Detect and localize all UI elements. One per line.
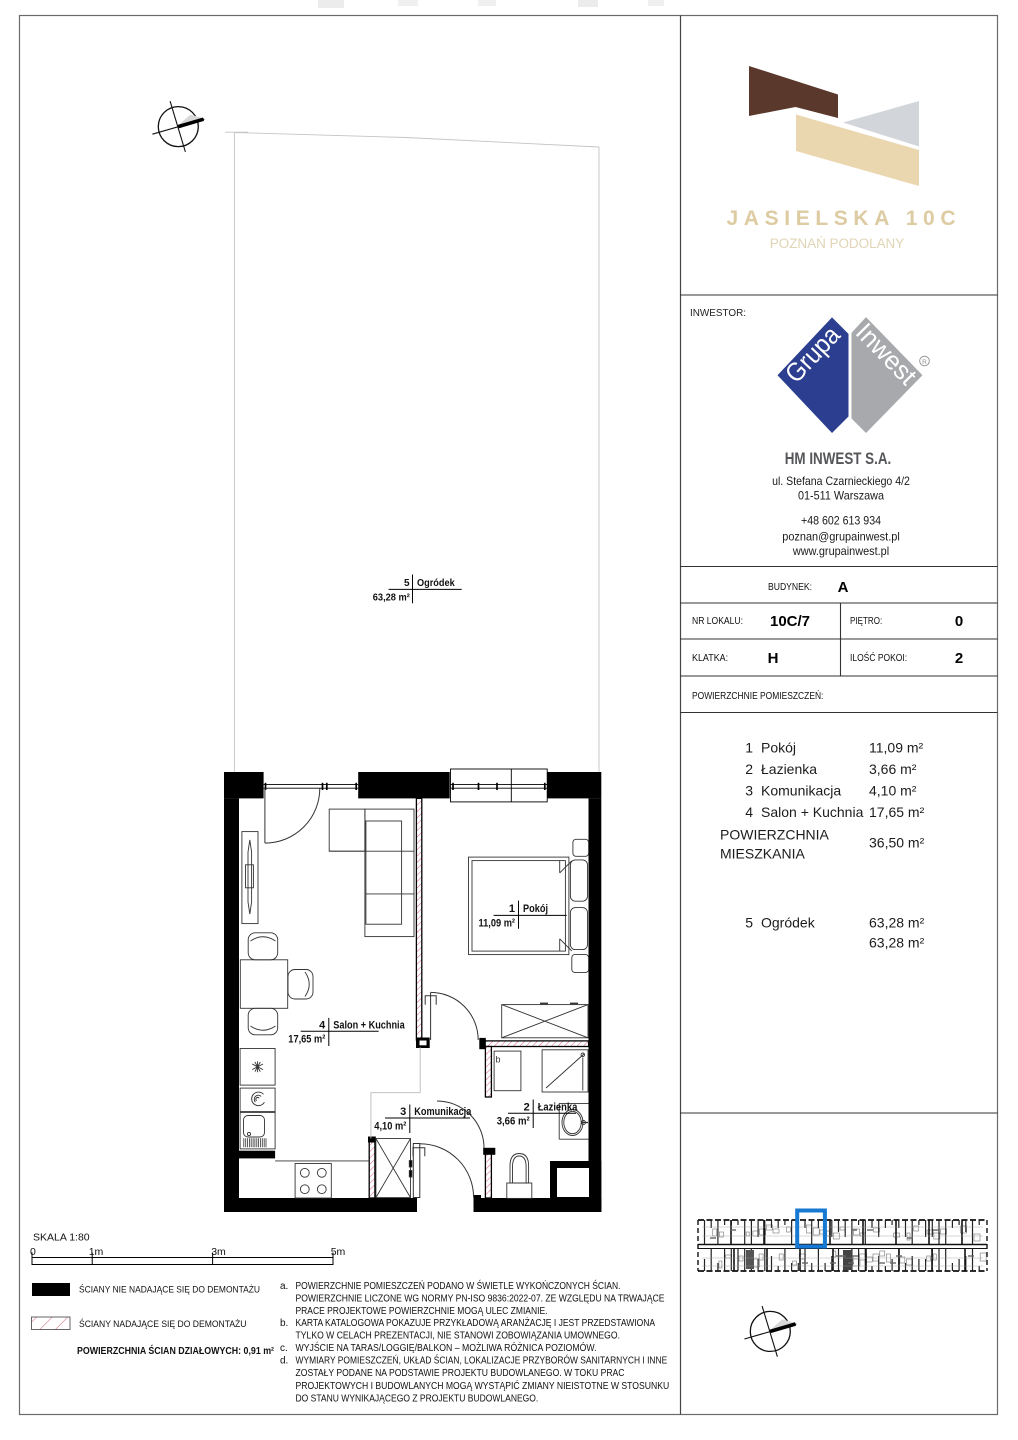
- svg-text:0: 0: [30, 1246, 36, 1258]
- svg-text:ŚCIANY NADAJĄCE SIĘ DO DEMONTA: ŚCIANY NADAJĄCE SIĘ DO DEMONTAŻU: [79, 1318, 247, 1330]
- svg-text:1: 1: [509, 903, 515, 915]
- svg-text:TYLKO W CELACH PREZENTACJI, NI: TYLKO W CELACH PREZENTACJI, NIE STANOWI …: [296, 1330, 621, 1341]
- svg-text:HM INWEST S.A.: HM INWEST S.A.: [785, 450, 892, 468]
- svg-text:Łazienka: Łazienka: [761, 761, 817, 777]
- svg-text:ŚCIANY NIE NADAJĄCE SIĘ DO DEM: ŚCIANY NIE NADAJĄCE SIĘ DO DEMONTAŻU: [79, 1284, 260, 1296]
- svg-text:63,28 m²: 63,28 m²: [869, 935, 925, 951]
- svg-text:4,10 m²: 4,10 m²: [374, 1121, 406, 1133]
- svg-text:63,28 m²: 63,28 m²: [869, 915, 925, 931]
- svg-text:WYJŚCIE NA TARAS/LOGGIĘ/BALKON: WYJŚCIE NA TARAS/LOGGIĘ/BALKON – MOŻLIWA…: [296, 1341, 597, 1354]
- svg-text:4: 4: [319, 1020, 326, 1032]
- svg-text:POWIERZCHNIA: POWIERZCHNIA: [720, 827, 830, 843]
- svg-text:b: b: [496, 1055, 501, 1065]
- svg-text:4,10 m²: 4,10 m²: [869, 783, 917, 799]
- svg-text:MIESZKANIA: MIESZKANIA: [720, 845, 805, 861]
- svg-text:NR LOKALU:: NR LOKALU:: [692, 616, 743, 627]
- svg-text:2: 2: [955, 650, 963, 667]
- svg-text:Salon + Kuchnia: Salon + Kuchnia: [333, 1020, 405, 1032]
- svg-text:3m: 3m: [211, 1246, 226, 1258]
- svg-text:POZNAŃ PODOLANY: POZNAŃ PODOLANY: [770, 236, 905, 251]
- svg-text:0: 0: [955, 613, 963, 630]
- svg-text:17,65 m²: 17,65 m²: [288, 1034, 325, 1046]
- svg-text:ul. Stefana Czarnieckiego 4/2: ul. Stefana Czarnieckiego 4/2: [772, 474, 910, 488]
- svg-text:11,09 m²: 11,09 m²: [869, 740, 924, 756]
- svg-text:4: 4: [745, 804, 753, 820]
- svg-text:2: 2: [745, 761, 753, 777]
- svg-text:PIĘTRO:: PIĘTRO:: [850, 616, 882, 627]
- svg-text:2: 2: [524, 1102, 530, 1114]
- svg-text:b.: b.: [280, 1318, 288, 1329]
- svg-text:a.: a.: [280, 1281, 288, 1292]
- svg-text:+48 602 613 934: +48 602 613 934: [801, 514, 881, 528]
- svg-text:3,66 m²: 3,66 m²: [869, 761, 917, 777]
- svg-text:01-511 Warszawa: 01-511 Warszawa: [798, 489, 884, 503]
- svg-text:www.grupainwest.pl: www.grupainwest.pl: [792, 544, 889, 558]
- svg-text:POWIERZCHNIE LICZONE WG NORMY: POWIERZCHNIE LICZONE WG NORMY PN-ISO 983…: [296, 1294, 665, 1305]
- svg-text:BUDYNEK:: BUDYNEK:: [768, 582, 812, 593]
- svg-text:POWIERZCHNIE POMIESZCZEŃ:: POWIERZCHNIE POMIESZCZEŃ:: [692, 689, 823, 702]
- svg-text:5: 5: [745, 915, 753, 931]
- svg-text:1: 1: [745, 740, 753, 756]
- svg-text:Komunikacja: Komunikacja: [414, 1106, 472, 1118]
- svg-text:10C/7: 10C/7: [770, 613, 810, 630]
- svg-text:ILOŚĆ POKOI:: ILOŚĆ POKOI:: [850, 651, 907, 664]
- svg-text:WYMIARY POMIESZCZEŃ, UKŁAD ŚCI: WYMIARY POMIESZCZEŃ, UKŁAD ŚCIAN, LOKALI…: [296, 1354, 668, 1367]
- svg-text:SKALA 1:80: SKALA 1:80: [33, 1232, 90, 1244]
- svg-text:INWESTOR:: INWESTOR:: [690, 307, 746, 319]
- svg-text:3: 3: [400, 1106, 406, 1118]
- svg-text:3,66 m²: 3,66 m²: [497, 1116, 530, 1128]
- svg-text:17,65 m²: 17,65 m²: [869, 804, 925, 820]
- svg-text:R: R: [922, 359, 927, 366]
- svg-text:c.: c.: [280, 1343, 288, 1354]
- svg-text:Komunikacja: Komunikacja: [761, 783, 841, 799]
- svg-text:Ogródek: Ogródek: [417, 578, 455, 589]
- svg-text:POWIERZCHNIA ŚCIAN DZIAŁOWYCH:: POWIERZCHNIA ŚCIAN DZIAŁOWYCH: 0,91 m²: [77, 1344, 274, 1357]
- svg-text:d.: d.: [280, 1356, 288, 1367]
- svg-text:Łazienka: Łazienka: [538, 1102, 578, 1114]
- svg-text:Salon + Kuchnia: Salon + Kuchnia: [761, 804, 864, 820]
- svg-text:11,09 m²: 11,09 m²: [479, 918, 516, 930]
- svg-text:Pokój: Pokój: [523, 903, 548, 915]
- svg-text:Ogródek: Ogródek: [761, 915, 816, 931]
- svg-text:KARTA KATALOGOWA POKAZUJE PRZY: KARTA KATALOGOWA POKAZUJE PRZYKŁADOWĄ AR…: [296, 1316, 656, 1329]
- svg-text:PROJEKTOWYCH I BUDOWLANYCH MOG: PROJEKTOWYCH I BUDOWLANYCH MOGĄ WYSTĄPIĆ…: [296, 1379, 670, 1392]
- svg-text:PRACE PROJEKTOWE POWIERZCHNIE: PRACE PROJEKTOWE POWIERZCHNIE MOGĄ ULEC …: [296, 1306, 548, 1317]
- svg-text:36,50 m²: 36,50 m²: [869, 835, 925, 851]
- svg-text:1m: 1m: [89, 1246, 104, 1258]
- svg-text:63,28 m²: 63,28 m²: [373, 593, 411, 604]
- svg-text:5: 5: [404, 578, 410, 589]
- svg-text:H: H: [768, 650, 779, 667]
- svg-text:DO STANU WYNIKAJĄCEGO Z PROJEK: DO STANU WYNIKAJĄCEGO Z PROJEKTU BUDOWLA…: [296, 1394, 539, 1405]
- svg-text:ZOSTAŁY PODANE NA PODSTAWIE PR: ZOSTAŁY PODANE NA PODSTAWIE PROJEKTU BUD…: [296, 1368, 625, 1379]
- svg-text:3: 3: [745, 783, 753, 799]
- svg-text:POWIERZCHNIE POMIESZCZEŃ PODAN: POWIERZCHNIE POMIESZCZEŃ PODANO W ŚWIETL…: [296, 1279, 621, 1292]
- svg-text:KLATKA:: KLATKA:: [692, 653, 728, 664]
- svg-text:Pokój: Pokój: [761, 740, 796, 756]
- svg-text:A: A: [838, 579, 849, 596]
- svg-text:5m: 5m: [331, 1246, 346, 1258]
- svg-text:poznan@grupainwest.pl: poznan@grupainwest.pl: [782, 529, 900, 543]
